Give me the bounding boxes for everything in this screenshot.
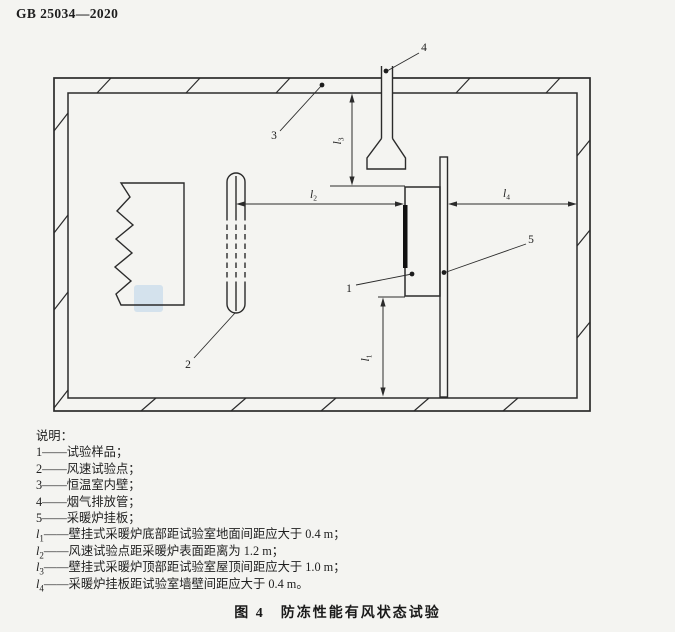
legend-item-1: 1——试验样品； [36,444,656,460]
label-part-4-flue: 4 [421,42,427,54]
inner-wall [68,93,577,398]
appliance-front-panel [403,205,408,268]
legend-item-4: 4——烟气排放管； [36,494,656,510]
legend-title: 说明： [36,428,656,444]
mounting-board [440,157,448,397]
flue-pipe [367,66,406,169]
legend-dim-l3: l3——壁挂式采暖炉顶部距试验室屋顶间距应大于 1.0 m； [36,559,656,575]
label-part-3-inner-wall: 3 [271,130,277,142]
wall-hatching [54,78,590,411]
label-dim-l3: l3 [332,137,346,144]
legend: 说明： 1——试验样品； 2——风速试验点； 3——恒温室内壁； 4——烟气排放… [36,428,656,592]
legend-dim-l4: l4——采暖炉挂板距试验室墙壁间距应大于 0.4 m。 [36,576,656,592]
label-dim-l4: l4 [503,188,510,202]
legend-item-2: 2——风速试验点； [36,461,656,477]
label-part-2-wind-point: 2 [185,359,191,371]
legend-dim-l1: l1——壁挂式采暖炉底部距试验室地面间距应大于 0.4 m； [36,526,656,542]
label-part-1-sample: 1 [346,283,352,295]
outer-wall [54,78,590,411]
label-dim-l2: l2 [310,189,317,203]
extension-lines [330,186,405,297]
document-page: GB 25034—2020 [0,0,675,632]
label-part-5-board: 5 [528,234,534,246]
draft-hood [367,139,406,170]
legend-item-3: 3——恒温室内壁； [36,477,656,493]
legend-dim-l2: l2——风速试验点距采暖炉表面距离为 1.2 m； [36,543,656,559]
figure-caption: 图 4 防冻性能有风状态试验 [0,602,675,622]
label-dim-l1: l1 [360,354,374,361]
wind-speed-probe [227,173,245,313]
test-sample-appliance [403,187,440,296]
watermark-stamp [134,285,163,312]
legend-item-5: 5——采暖炉挂板； [36,510,656,526]
